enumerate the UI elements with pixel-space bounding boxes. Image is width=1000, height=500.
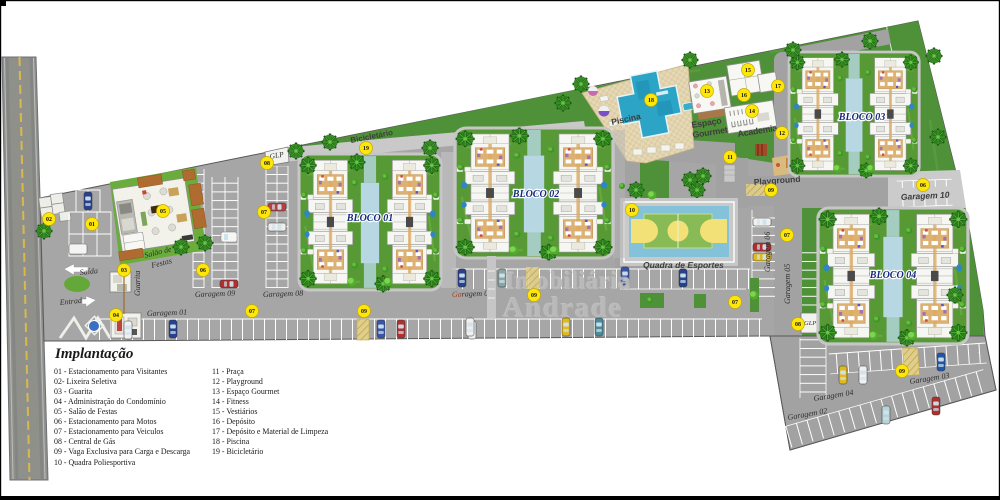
- svg-text:08: 08: [795, 322, 801, 328]
- svg-text:08 - Central de Gás: 08 - Central de Gás: [54, 437, 115, 446]
- svg-text:05 - Salão de Festas: 05 - Salão de Festas: [54, 407, 117, 416]
- svg-text:09: 09: [899, 369, 905, 375]
- svg-text:Garagem 08: Garagem 08: [263, 289, 304, 299]
- svg-text:06: 06: [200, 268, 206, 274]
- svg-text:BLOCO 02: BLOCO 02: [512, 189, 559, 200]
- svg-text:Guarita: Guarita: [133, 271, 142, 296]
- svg-text:09: 09: [768, 188, 774, 194]
- svg-text:BLOCO 01: BLOCO 01: [346, 213, 393, 224]
- svg-text:GLP: GLP: [804, 320, 816, 327]
- svg-text:09 - Vaga Exclusiva para Carga: 09 - Vaga Exclusiva para Carga e Descarg…: [54, 447, 191, 456]
- svg-text:14: 14: [749, 109, 755, 115]
- svg-text:05: 05: [160, 209, 166, 215]
- svg-text:14 - Fitness: 14 - Fitness: [212, 397, 249, 406]
- svg-text:07: 07: [784, 233, 790, 239]
- svg-text:17: 17: [775, 84, 781, 90]
- svg-text:07 - Estacionamento para Veicu: 07 - Estacionamento para Veiculos: [54, 427, 163, 436]
- svg-text:06: 06: [920, 183, 926, 189]
- svg-text:11 - Praça: 11 - Praça: [212, 367, 244, 376]
- svg-text:12 - Playground: 12 - Playground: [212, 377, 263, 386]
- svg-text:BLOCO 04: BLOCO 04: [869, 270, 916, 281]
- svg-text:15: 15: [745, 68, 751, 74]
- svg-text:09: 09: [361, 309, 367, 315]
- svg-text:18: 18: [648, 98, 654, 104]
- svg-text:02- Lixeira Seletiva: 02- Lixeira Seletiva: [54, 377, 117, 386]
- svg-text:06 - Estacionamento para Motos: 06 - Estacionamento para Motos: [54, 417, 157, 426]
- svg-text:03 - Guarita: 03 - Guarita: [54, 387, 93, 396]
- svg-text:09: 09: [531, 293, 537, 299]
- svg-text:01: 01: [89, 222, 95, 228]
- svg-text:BLOCO 03: BLOCO 03: [838, 112, 885, 123]
- svg-text:19 - Bicicletário: 19 - Bicicletário: [212, 447, 263, 456]
- svg-text:10 - Quadra Poliesportiva: 10 - Quadra Poliesportiva: [54, 458, 136, 467]
- svg-text:19: 19: [363, 146, 369, 152]
- svg-text:15 - Vestiários: 15 - Vestiários: [212, 407, 257, 416]
- svg-text:07: 07: [249, 309, 255, 315]
- svg-text:Andrade: Andrade: [503, 292, 623, 324]
- svg-text:08: 08: [264, 161, 270, 167]
- svg-text:17 - Depósito e Material de Li: 17 - Depósito e Material de Limpeza: [212, 427, 329, 436]
- svg-text:16: 16: [741, 93, 747, 99]
- svg-text:04 - Administração do Condomín: 04 - Administração do Condomínio: [54, 397, 166, 406]
- svg-text:Quadra de Esportes: Quadra de Esportes: [643, 260, 724, 270]
- svg-text:Imobiliária: Imobiliária: [505, 268, 631, 295]
- svg-text:13 - Espaço Gourmet: 13 - Espaço Gourmet: [212, 387, 280, 396]
- svg-text:Garagem 01: Garagem 01: [147, 308, 188, 318]
- svg-text:07: 07: [732, 300, 738, 306]
- svg-text:18 - Piscina: 18 - Piscina: [212, 437, 250, 446]
- svg-text:04: 04: [113, 313, 119, 319]
- svg-text:10: 10: [629, 208, 635, 214]
- svg-text:Garagem 05: Garagem 05: [783, 264, 792, 304]
- svg-text:03: 03: [121, 268, 127, 274]
- svg-text:Implantação: Implantação: [54, 346, 133, 362]
- svg-text:13: 13: [704, 89, 710, 95]
- svg-text:02: 02: [46, 217, 52, 223]
- svg-text:01 - Estacionamento para Visit: 01 - Estacionamento para Visitantes: [54, 367, 167, 376]
- svg-text:Garagem 06: Garagem 06: [763, 232, 772, 272]
- svg-text:07: 07: [261, 210, 267, 216]
- svg-text:11: 11: [727, 155, 733, 161]
- svg-text:Saída: Saída: [79, 266, 98, 277]
- svg-text:Garagem 09: Garagem 09: [195, 289, 236, 299]
- svg-text:16 - Depósito: 16 - Depósito: [212, 417, 255, 426]
- svg-text:12: 12: [779, 131, 785, 137]
